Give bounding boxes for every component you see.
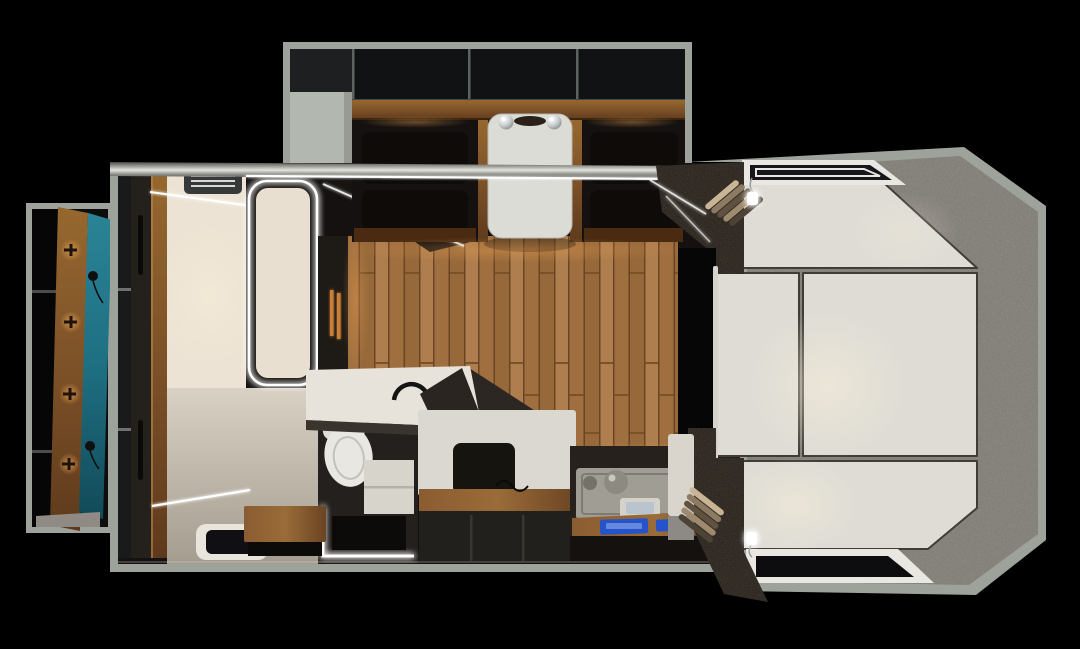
faucet-highlight <box>609 475 616 482</box>
floorplan-canvas <box>0 0 1080 649</box>
main-cabin <box>110 114 746 572</box>
drain-cap <box>583 476 597 490</box>
ac-slat <box>191 180 235 182</box>
bed-footwell <box>678 248 716 458</box>
slideout-wall-top <box>283 42 692 49</box>
stool-top <box>244 506 326 542</box>
locker-left-cell <box>290 49 352 92</box>
lamp-pool <box>850 192 960 272</box>
wood-edge-highlight <box>151 168 153 558</box>
bench-divider <box>522 515 525 561</box>
underlocker-glow <box>584 116 680 128</box>
bulb-highlight <box>550 118 554 122</box>
shelf-line <box>118 428 131 431</box>
lamp-bulb <box>547 115 562 130</box>
bench-divider <box>470 515 473 561</box>
stool-base <box>248 542 322 556</box>
camper-floorplan-render <box>0 0 1080 649</box>
lamp-bulb <box>499 115 514 130</box>
kitchen-faucet <box>604 470 628 494</box>
wardrobe-wood-edge <box>151 168 167 558</box>
entry-door-open <box>26 203 114 533</box>
shelf-line <box>118 288 131 291</box>
underlocker-glow <box>360 116 470 128</box>
locker-divider <box>352 49 355 103</box>
backlit-door <box>246 178 320 388</box>
ac-slat <box>191 185 235 187</box>
wardrobe <box>118 168 167 558</box>
locker-divider <box>468 49 471 103</box>
wall-light-slit <box>337 293 341 339</box>
screen-glare <box>606 523 642 529</box>
lamp-cube <box>746 532 757 545</box>
wall-bottom <box>110 564 746 572</box>
bench-wood-top <box>419 489 576 511</box>
locker-divider <box>576 49 579 103</box>
wall-light-slit <box>330 290 334 336</box>
bench-base <box>419 511 576 561</box>
wardrobe-handle <box>138 215 143 275</box>
door-face <box>256 188 310 378</box>
step-line <box>364 486 414 489</box>
wall-left <box>110 163 118 572</box>
lamp-bracket <box>514 116 546 126</box>
floor-glow <box>343 237 687 263</box>
door-knob <box>88 271 98 281</box>
door-shelf-line <box>32 290 58 293</box>
lamp-pool <box>748 310 908 460</box>
door-knob <box>85 441 95 451</box>
shower-tile <box>332 516 406 550</box>
wardrobe-handle <box>138 420 143 480</box>
lamp-cube <box>747 192 758 205</box>
bulb-highlight <box>502 118 506 122</box>
wall-bottom-highlight <box>118 561 738 563</box>
sink-basin <box>626 502 654 514</box>
wardrobe-shelves <box>118 170 131 558</box>
seat-cushion <box>362 190 468 232</box>
dinette <box>343 114 687 263</box>
step-stool <box>244 506 326 556</box>
seat-cushion-dark <box>453 443 515 495</box>
window-glass <box>756 556 914 577</box>
dinette-seat-left <box>352 120 478 242</box>
